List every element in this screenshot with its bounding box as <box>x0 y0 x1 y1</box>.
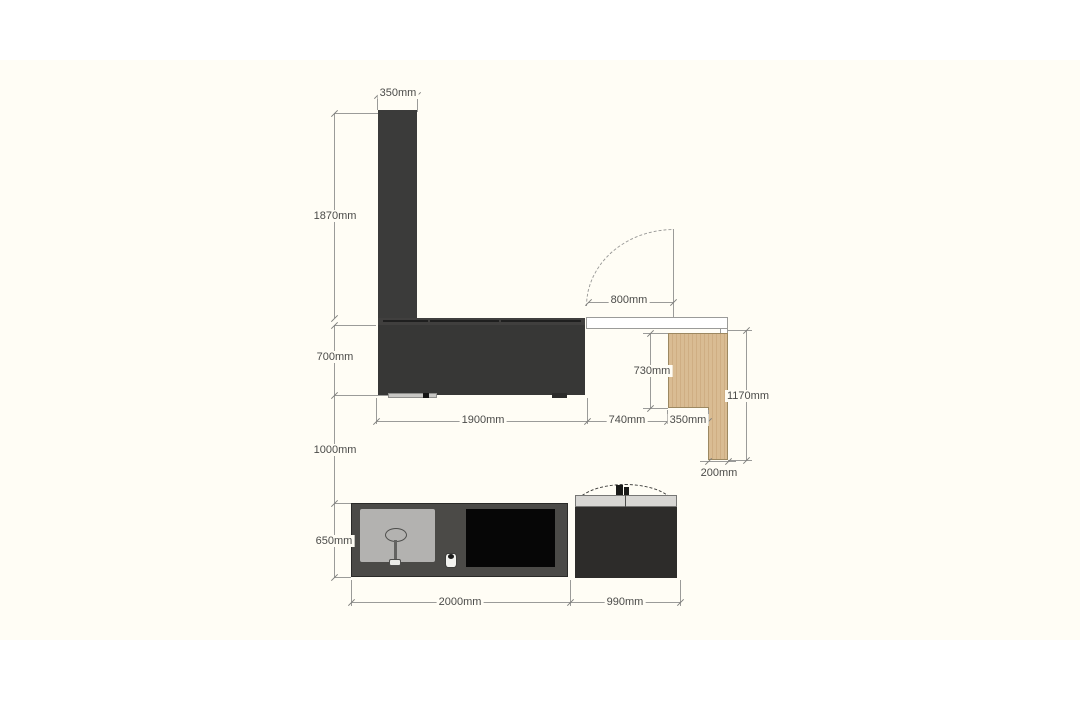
cabinet-plinth <box>388 393 437 398</box>
extension-line <box>643 333 668 334</box>
dim-label-island-height: 650mm <box>314 535 355 547</box>
dim-label-counter-width: 1900mm <box>460 414 507 426</box>
drawer-segment-line <box>430 320 499 322</box>
countertop-extension <box>586 317 728 329</box>
extension-line <box>334 113 378 114</box>
dim-line-1900-740-350 <box>376 421 708 422</box>
canister-lid-dot <box>448 554 454 559</box>
side-unit-body <box>575 507 677 578</box>
dimension-drawing: 350mm 1870mm 800mm 700mm 730mm 1170mm 19… <box>0 0 1080 715</box>
cooktop <box>466 509 555 567</box>
drawer-segment-line <box>383 320 428 322</box>
dim-label-panel-upper: 730mm <box>632 365 673 377</box>
extension-line <box>334 577 351 578</box>
dim-label-panel-leg: 200mm <box>699 467 740 479</box>
faucet-base <box>389 559 401 566</box>
extension-line <box>334 325 376 326</box>
wood-panel-leg <box>708 407 728 460</box>
dim-label-island-width: 2000mm <box>437 596 484 608</box>
door-hinge-line <box>673 229 674 317</box>
extension-line <box>728 330 752 331</box>
side-unit-top-band <box>575 495 677 507</box>
dim-label-door-clearance: 800mm <box>609 294 650 306</box>
drawer-segment-line <box>501 320 581 322</box>
tall-cabinet-column <box>378 110 417 318</box>
plinth-foot <box>423 393 429 398</box>
dim-label-panel-width: 350mm <box>668 414 709 426</box>
wood-panel-upper <box>668 333 728 408</box>
base-cabinet <box>378 325 585 395</box>
dim-label-column-height: 1870mm <box>312 210 359 222</box>
dim-line-200 <box>700 461 736 462</box>
cabinet-foot-right <box>552 393 567 398</box>
extension-line <box>334 395 388 396</box>
extension-line <box>334 503 351 504</box>
dim-label-column-width: 350mm <box>378 87 419 99</box>
dim-label-gap-width: 740mm <box>607 414 648 426</box>
extension-line <box>643 408 668 409</box>
dim-label-counter-height: 700mm <box>315 351 356 363</box>
dim-label-side-unit: 990mm <box>605 596 646 608</box>
dim-label-panel-total: 1170mm <box>725 390 771 402</box>
side-unit-top-divider <box>625 495 626 507</box>
dim-label-vertical-gap: 1000mm <box>312 444 359 456</box>
